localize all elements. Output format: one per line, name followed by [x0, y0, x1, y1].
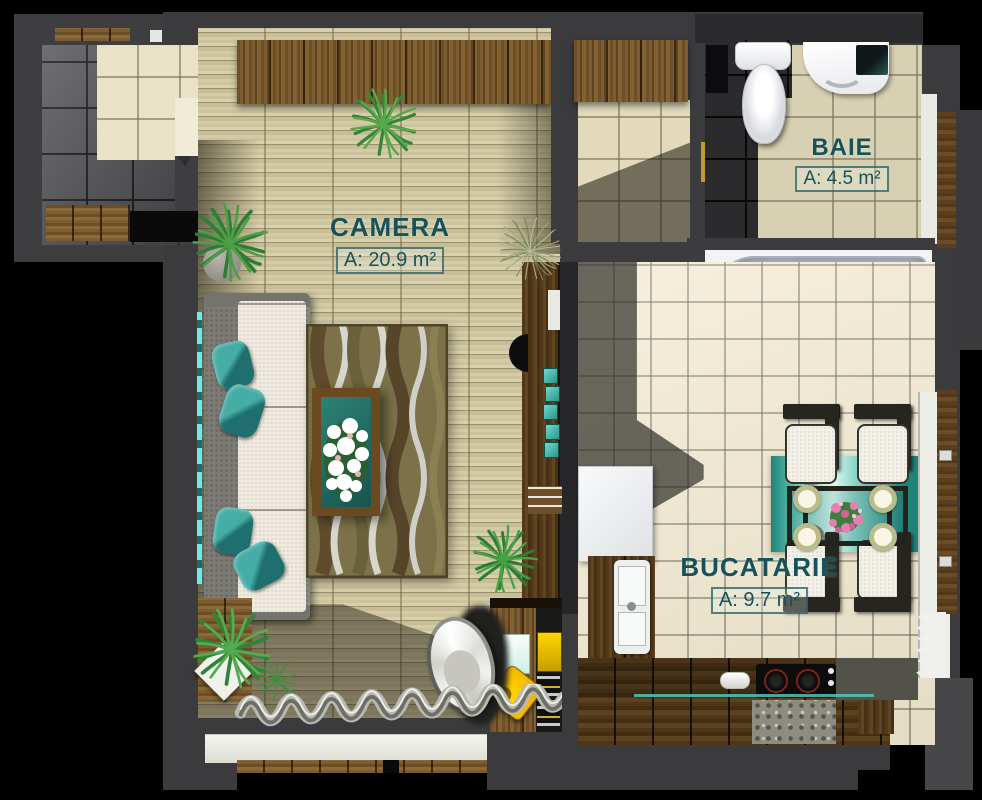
chair-seat: [785, 424, 837, 484]
apartment-floor-plan: CAMERA A: 20.9 m² BAIE A: 4.5 m² BUCATAR…: [0, 0, 982, 800]
divider-teal-glass: [543, 404, 558, 420]
divider-teal-glass: [545, 424, 560, 440]
cooktop-knob: [828, 668, 834, 674]
cooktop-knob: [828, 680, 834, 686]
sink-mirror-cabinet: [856, 45, 888, 75]
plate: [869, 485, 897, 513]
divider-wall-dark: [560, 262, 578, 614]
plate: [793, 485, 821, 513]
table-flower-bouquet: [320, 414, 372, 504]
room-label-bucatarie: BUCATARIE A: 9.7 m²: [672, 552, 847, 614]
wall-living-bottom-right: [487, 732, 590, 790]
desk-yellow-cabinet: [537, 632, 562, 672]
wall-top-right-black: [923, 0, 982, 45]
window-curtain: [234, 684, 562, 732]
hallway-wardrobe: [574, 40, 688, 102]
cooktop-burner: [764, 669, 788, 693]
divider-teal-glass: [544, 442, 559, 458]
bathroom-shelf: [921, 94, 937, 244]
hanging-plant: [338, 84, 430, 164]
wall-bottom-band: [568, 745, 858, 790]
kitchen-sink-basin: [618, 612, 646, 646]
room-area-bucatarie: A: 9.7 m²: [711, 587, 808, 614]
terrace-wood-sliver: [55, 28, 130, 41]
terrace-bench: [46, 205, 130, 241]
cooktop-burner: [796, 669, 820, 693]
room-area-camera: A: 20.9 m²: [336, 247, 444, 274]
divider-teal-glass: [543, 368, 558, 384]
wall-bath-top-dark: [695, 14, 923, 43]
kitchen-balcony-door: [937, 390, 957, 614]
toilet-bowl: [742, 64, 786, 144]
room-name-camera: CAMERA: [315, 212, 465, 243]
door-handle: [939, 450, 952, 461]
fridge: [578, 466, 653, 562]
window-frame-gap: [383, 760, 399, 773]
room-label-camera: CAMERA A: 20.9 m²: [315, 212, 465, 274]
bathroom-door: [937, 112, 956, 248]
chair-back: [854, 597, 911, 612]
sofa-led-strip: [197, 312, 202, 584]
room-name-bucatarie: BUCATARIE: [672, 552, 847, 583]
terrace-vent: [150, 30, 162, 42]
stone-mat: [752, 700, 836, 744]
paper-towel-roll: [720, 672, 750, 689]
counter-glass-edge: [634, 694, 874, 697]
room-area-baie: A: 4.5 m²: [795, 166, 888, 192]
divider-teal-glass: [545, 386, 560, 402]
kitchen-sink-basin: [618, 566, 646, 606]
plate: [869, 523, 897, 551]
kitchen-wood-block: [858, 700, 894, 734]
plate: [793, 523, 821, 551]
window-frame-wood: [237, 760, 487, 773]
washing-machine: [706, 45, 728, 93]
room-label-baie: BAIE A: 4.5 m²: [792, 134, 892, 192]
chair-seat: [857, 424, 909, 484]
kitchen-faucet: [627, 602, 636, 611]
door-handle: [939, 556, 952, 567]
plant-dry-grass: [492, 190, 568, 310]
room-name-baie: BAIE: [792, 134, 892, 162]
plant-fern-terrace-door: [186, 198, 274, 288]
window-sill: [205, 734, 487, 763]
wall-right-bump: [955, 110, 982, 350]
dining-centerpiece-flowers: [824, 496, 866, 538]
